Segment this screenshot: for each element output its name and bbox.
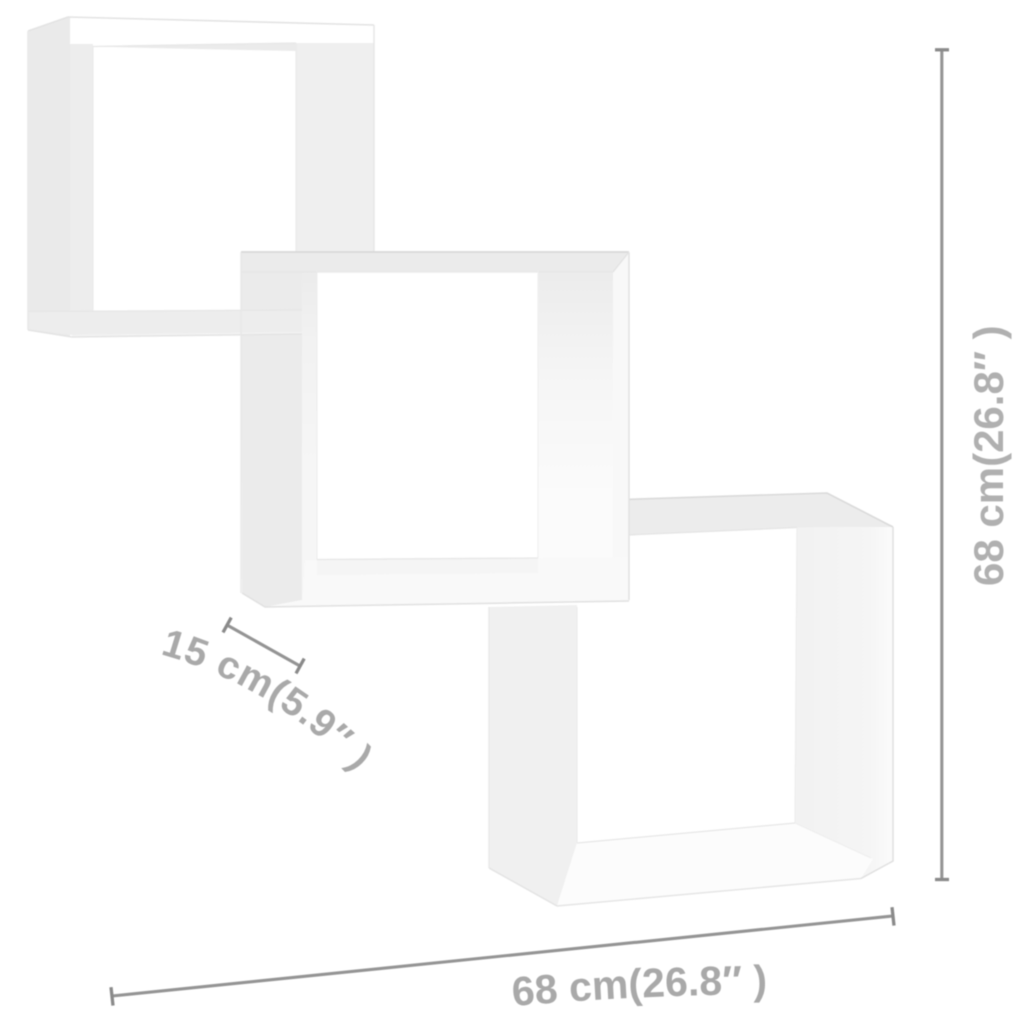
svg-text:68 cm(26.8″ ): 68 cm(26.8″ ) [965, 325, 1012, 586]
